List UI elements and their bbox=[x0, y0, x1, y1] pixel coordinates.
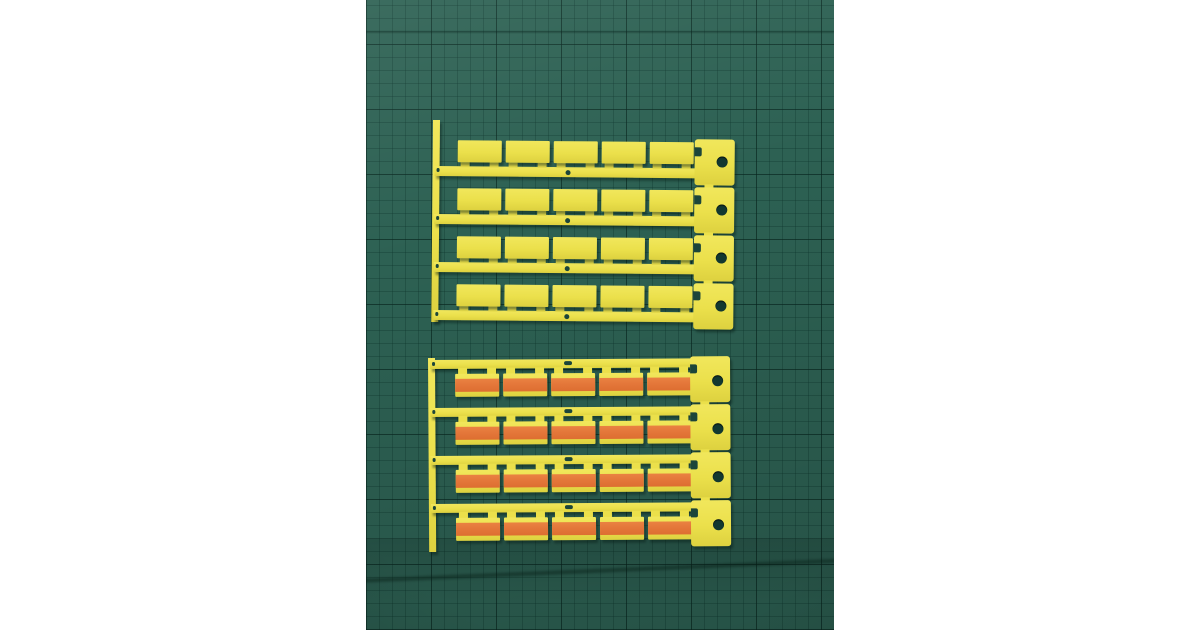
tag-stub bbox=[508, 211, 517, 216]
tab-notch bbox=[693, 291, 700, 300]
orange-label-stripe bbox=[456, 523, 500, 536]
tab-notch bbox=[690, 364, 697, 373]
orange-label-stripe bbox=[455, 379, 499, 392]
tag-stub bbox=[585, 211, 594, 216]
tag-stub bbox=[557, 163, 566, 168]
tag-stub bbox=[538, 163, 547, 168]
tab-hole bbox=[716, 204, 727, 215]
end-tab bbox=[690, 404, 730, 450]
marker-tag bbox=[552, 517, 596, 540]
tab-notch bbox=[691, 460, 698, 469]
tag-stub bbox=[508, 259, 517, 264]
marker-tag bbox=[504, 469, 548, 492]
end-tab bbox=[693, 283, 733, 329]
marker-tag bbox=[553, 237, 597, 259]
tag-stub bbox=[603, 307, 612, 312]
left-white-margin bbox=[0, 0, 366, 630]
marker-tag bbox=[648, 516, 692, 539]
orange-label-stripe bbox=[455, 427, 499, 440]
tab-hole bbox=[717, 156, 728, 167]
orange-label-stripe bbox=[647, 377, 691, 390]
tab-notch bbox=[690, 412, 697, 421]
tag-stub bbox=[460, 210, 469, 215]
orange-label-stripe bbox=[504, 474, 548, 487]
rail-end-slot bbox=[433, 506, 436, 510]
rail-hole bbox=[565, 218, 570, 223]
orange-label-stripe bbox=[503, 426, 547, 439]
tag-stub bbox=[489, 210, 498, 215]
rail-end-slot bbox=[432, 362, 435, 366]
tag-stub bbox=[459, 306, 468, 311]
rail-end-slot bbox=[432, 410, 435, 414]
marker-tag bbox=[599, 421, 643, 444]
orange-label-stripe bbox=[599, 426, 643, 439]
tab-hole bbox=[712, 375, 723, 386]
tab-hole bbox=[713, 519, 724, 530]
tab-hole bbox=[713, 471, 724, 482]
rail-hole bbox=[565, 505, 573, 509]
marker-tag bbox=[601, 189, 645, 211]
rail-hole bbox=[564, 361, 572, 365]
end-tab bbox=[690, 356, 730, 402]
tab-hole bbox=[712, 423, 723, 434]
marker-tag bbox=[503, 421, 547, 444]
rail-hole bbox=[565, 457, 573, 461]
marker-tag bbox=[503, 373, 547, 396]
marker-strip-group-plain bbox=[431, 120, 743, 361]
marker-tag bbox=[456, 518, 500, 541]
orange-label-stripe bbox=[552, 522, 596, 535]
marker-tag bbox=[599, 373, 643, 396]
tag-stub bbox=[586, 163, 595, 168]
marker-tag bbox=[647, 420, 691, 443]
tag-stub bbox=[604, 259, 613, 264]
tag-stub bbox=[556, 259, 565, 264]
orange-label-stripe bbox=[648, 521, 692, 534]
tab-hole bbox=[715, 300, 726, 311]
marker-tag bbox=[600, 517, 644, 540]
tag-stub bbox=[682, 164, 691, 169]
tag-stub bbox=[633, 260, 642, 265]
tab-notch bbox=[691, 508, 698, 517]
marker-tag bbox=[552, 469, 596, 492]
marker-tag bbox=[505, 189, 549, 211]
tag-stub bbox=[634, 164, 643, 169]
marker-tag bbox=[455, 422, 499, 445]
marker-tag bbox=[504, 517, 548, 540]
tag-stub bbox=[584, 307, 593, 312]
tag-stub bbox=[460, 258, 469, 263]
tab-notch bbox=[694, 195, 701, 204]
tab-notch bbox=[695, 147, 702, 156]
orange-label-stripe bbox=[503, 378, 547, 391]
orange-label-stripe bbox=[647, 425, 691, 438]
tag-stub bbox=[653, 164, 662, 169]
rail-hole bbox=[564, 409, 572, 413]
rail-end-slot bbox=[436, 264, 439, 268]
tag-stub bbox=[489, 258, 498, 263]
orange-label-stripe bbox=[551, 426, 595, 439]
tag-stub bbox=[585, 259, 594, 264]
orange-label-stripe bbox=[600, 522, 644, 535]
tag-stub bbox=[605, 163, 614, 168]
end-tab bbox=[691, 500, 731, 546]
tag-stub bbox=[681, 260, 690, 265]
marker-tag bbox=[456, 470, 500, 493]
orange-label-stripe bbox=[456, 475, 500, 488]
orange-label-stripe bbox=[504, 522, 548, 535]
tag-stub bbox=[536, 307, 545, 312]
tab-hole bbox=[716, 252, 727, 263]
marker-tag bbox=[649, 238, 693, 260]
tag-stub bbox=[652, 212, 661, 217]
orange-label-stripe bbox=[648, 473, 692, 486]
marker-tag bbox=[600, 469, 644, 492]
rail-end-slot bbox=[435, 312, 438, 316]
marker-tag bbox=[647, 372, 691, 395]
tab-notch bbox=[694, 243, 701, 252]
right-white-margin bbox=[834, 0, 1200, 630]
marker-tag bbox=[554, 141, 598, 163]
rail-hole bbox=[564, 314, 569, 319]
tag-stub bbox=[490, 162, 499, 167]
rail-end-slot bbox=[437, 168, 440, 172]
tag-stub bbox=[651, 308, 660, 313]
marker-tag bbox=[505, 237, 549, 259]
marker-tag bbox=[458, 140, 502, 162]
marker-tag bbox=[552, 285, 596, 307]
orange-label-stripe bbox=[551, 378, 595, 391]
marker-tag bbox=[648, 468, 692, 491]
end-tab bbox=[694, 235, 734, 281]
tag-stub bbox=[604, 211, 613, 216]
marker-tag bbox=[551, 421, 595, 444]
rail-end-slot bbox=[436, 216, 439, 220]
end-tab bbox=[694, 187, 734, 233]
tag-stub bbox=[555, 307, 564, 312]
end-tab bbox=[694, 139, 734, 185]
marker-tag bbox=[457, 236, 501, 258]
tag-stub bbox=[633, 212, 642, 217]
tag-stub bbox=[509, 163, 518, 168]
tag-stub bbox=[680, 308, 689, 313]
tag-stub bbox=[556, 211, 565, 216]
rail-end-slot bbox=[433, 458, 436, 462]
tag-stub bbox=[507, 307, 516, 312]
tag-stub bbox=[681, 212, 690, 217]
marker-tag bbox=[650, 142, 694, 164]
marker-tag bbox=[602, 141, 646, 163]
tag-stub bbox=[632, 308, 641, 313]
marker-tag bbox=[648, 286, 692, 308]
marker-tag bbox=[504, 285, 548, 307]
marker-tag bbox=[600, 285, 644, 307]
marker-tag bbox=[649, 190, 693, 212]
tag-stub bbox=[652, 260, 661, 265]
orange-label-stripe bbox=[599, 378, 643, 391]
orange-label-stripe bbox=[600, 474, 644, 487]
rail-hole bbox=[566, 170, 571, 175]
tag-stub bbox=[537, 211, 546, 216]
marker-tag bbox=[553, 189, 597, 211]
marker-tag bbox=[506, 141, 550, 163]
marker-tag bbox=[455, 374, 499, 397]
tag-stub bbox=[488, 306, 497, 311]
marker-tag bbox=[457, 188, 501, 210]
marker-strip-group-striped bbox=[428, 356, 739, 552]
rail-hole bbox=[565, 266, 570, 271]
marker-tag bbox=[601, 237, 645, 259]
tag-stub bbox=[461, 162, 470, 167]
tag-stub bbox=[537, 259, 546, 264]
photo-cutting-mat bbox=[366, 0, 834, 630]
orange-label-stripe bbox=[552, 474, 596, 487]
marker-tag bbox=[551, 373, 595, 396]
end-tab bbox=[691, 452, 731, 498]
marker-tag bbox=[456, 284, 500, 306]
